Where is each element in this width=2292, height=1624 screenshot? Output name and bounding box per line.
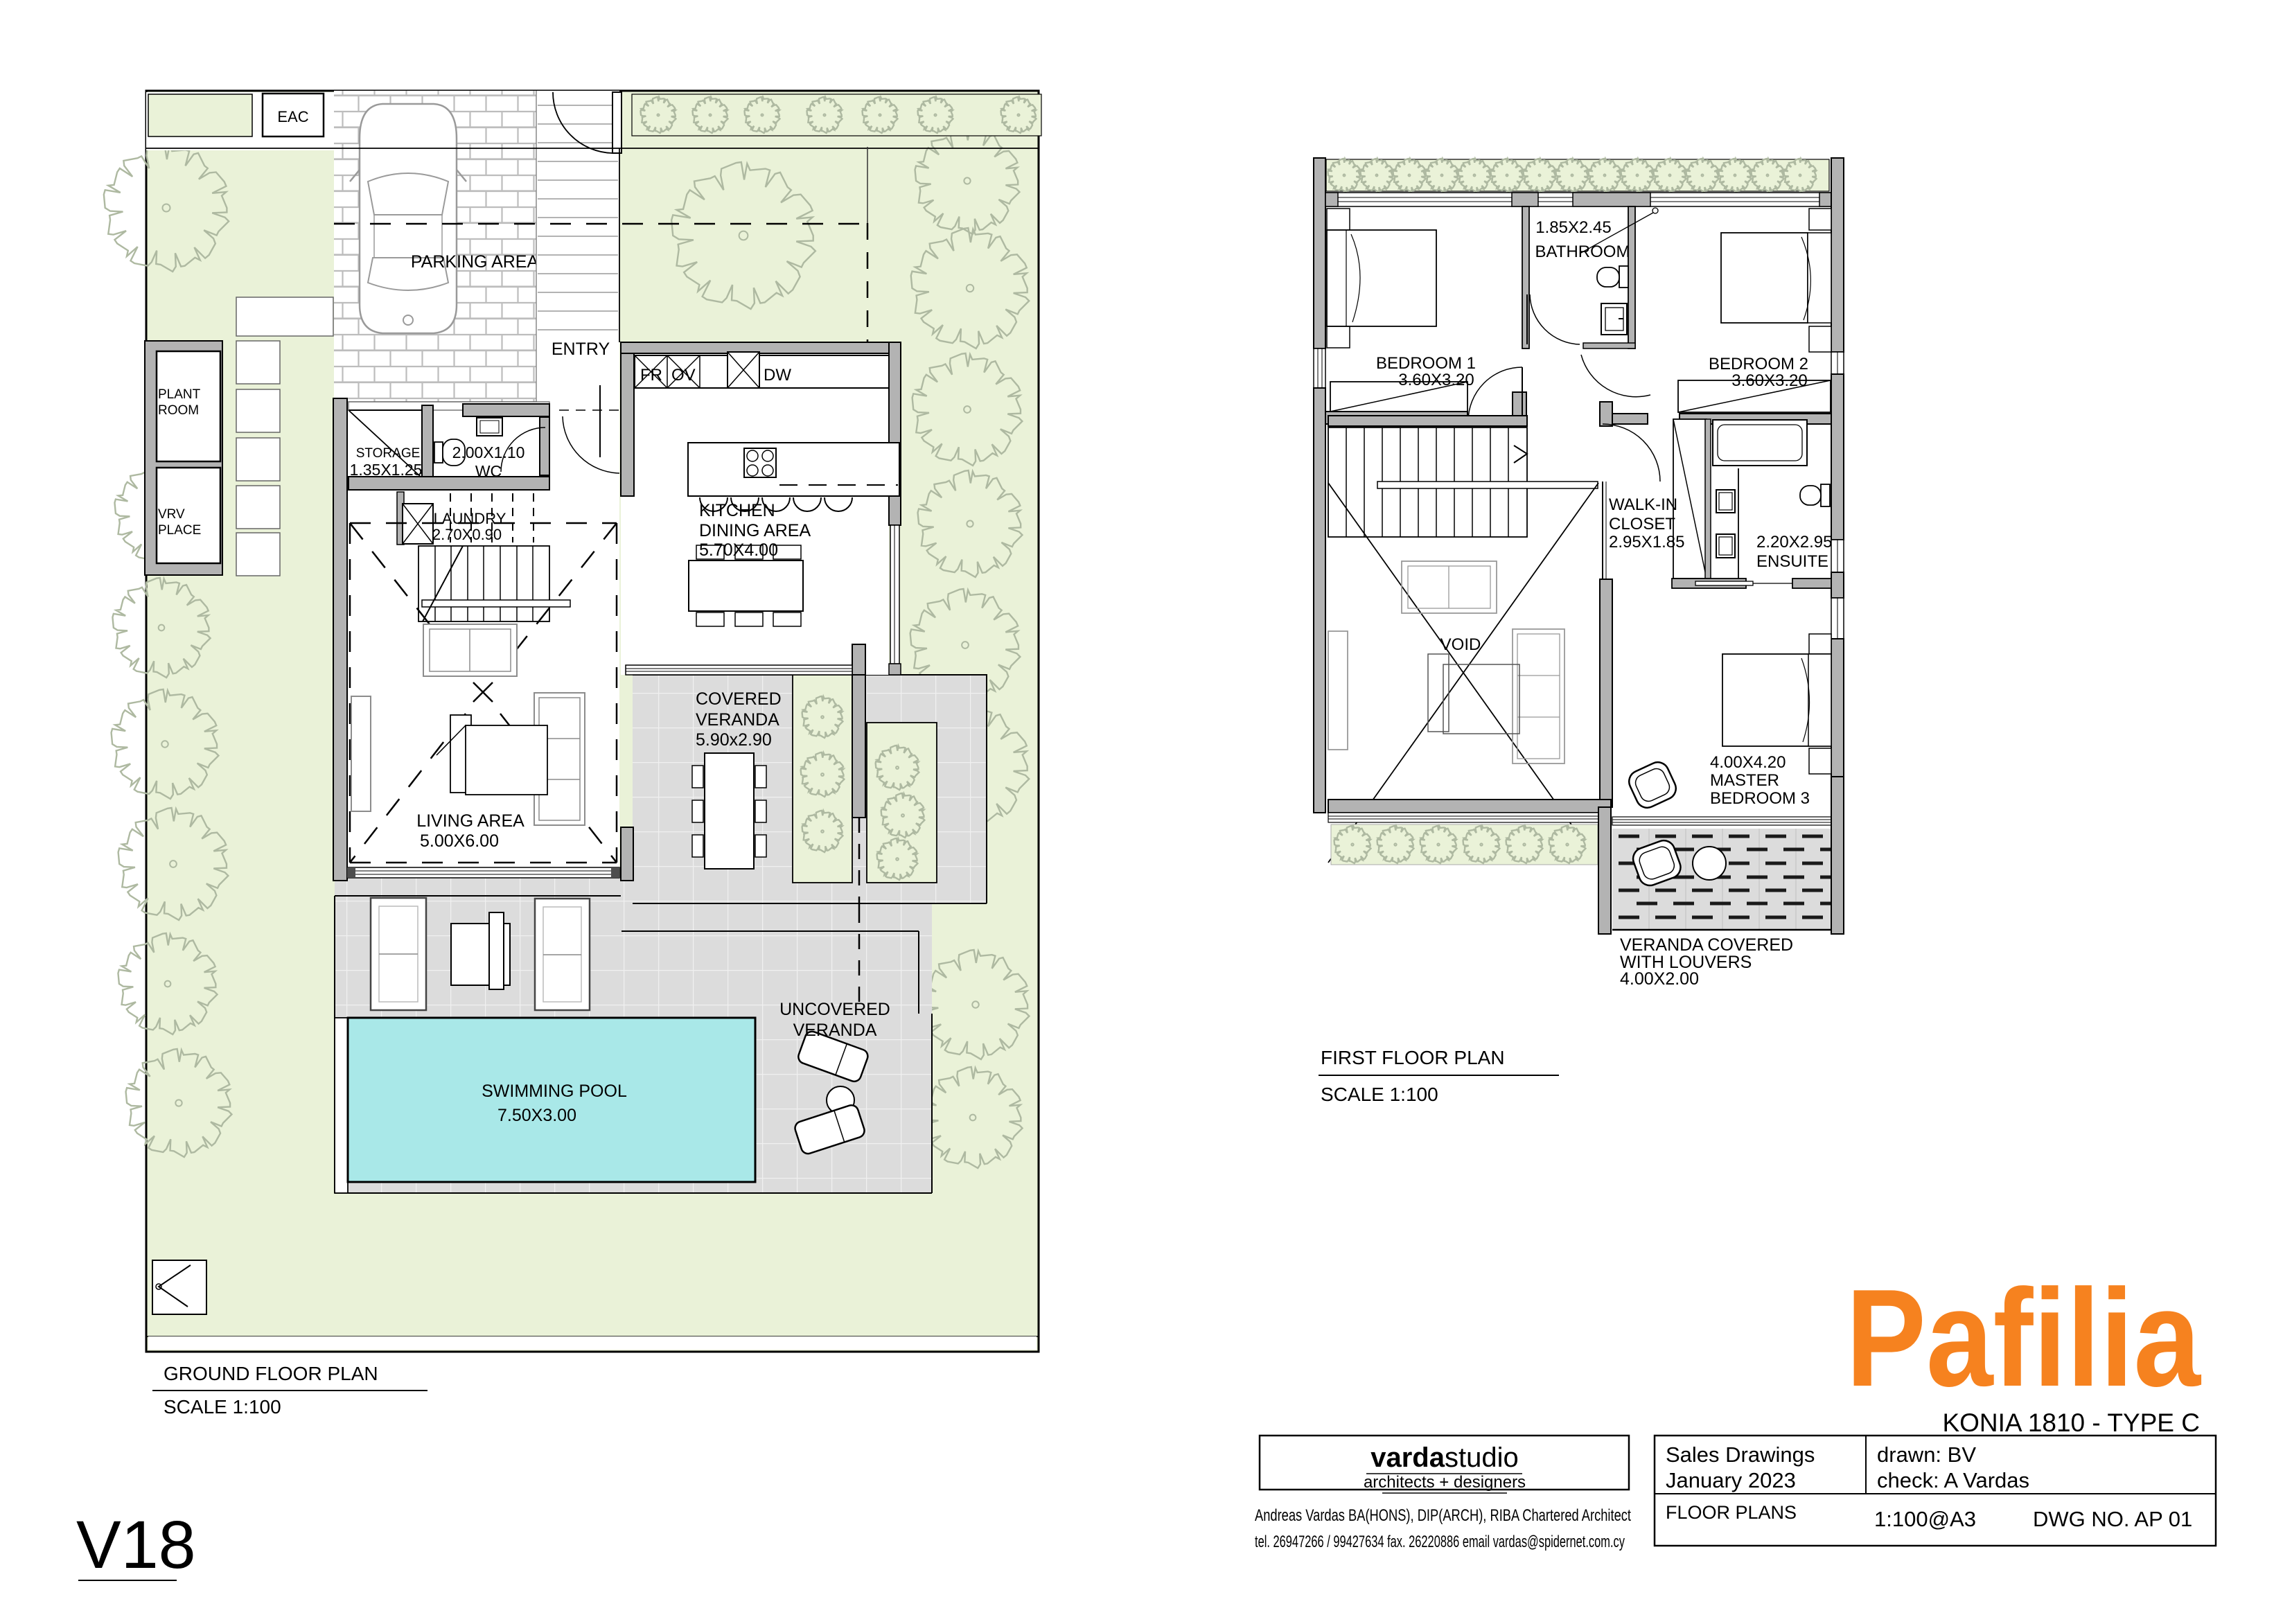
svg-text:SCALE 1:100: SCALE 1:100 [164,1396,281,1418]
svg-text:ROOM: ROOM [158,403,199,418]
svg-text:BEDROOM 2: BEDROOM 2 [1709,355,1808,373]
svg-text:5.90x2.90: 5.90x2.90 [696,730,772,750]
svg-text:1.35X1.25: 1.35X1.25 [350,461,423,479]
svg-text:LIVING AREA: LIVING AREA [416,811,524,831]
svg-text:vardastudio: vardastudio [1370,1442,1519,1473]
svg-text:FIRST FLOOR PLAN: FIRST FLOOR PLAN [1321,1047,1505,1068]
svg-text:WALK-IN: WALK-IN [1609,495,1677,514]
svg-text:4.00X4.20: 4.00X4.20 [1710,753,1786,772]
svg-text:5.00X6.00: 5.00X6.00 [420,831,499,851]
svg-text:1:100@A3: 1:100@A3 [1874,1507,1976,1531]
svg-text:DWG NO. AP 01: DWG NO. AP 01 [2033,1507,2192,1531]
svg-text:VRV: VRV [158,507,185,522]
svg-text:4.00X2.00: 4.00X2.00 [1620,969,1699,989]
svg-text:OV: OV [671,366,696,385]
svg-text:EAC: EAC [277,108,308,125]
svg-text:ENSUITE: ENSUITE [1756,552,1828,571]
svg-text:2.20X2.95: 2.20X2.95 [1756,533,1832,551]
svg-text:FLOOR PLANS: FLOOR PLANS [1666,1502,1797,1523]
svg-text:ENTRY: ENTRY [552,339,610,359]
svg-text:DINING AREA: DINING AREA [699,521,811,540]
svg-text:2.70X0.90: 2.70X0.90 [432,526,502,543]
svg-text:5.70X4.00: 5.70X4.00 [699,540,778,560]
svg-text:1.85X2.45: 1.85X2.45 [1535,218,1611,237]
svg-text:VERANDA: VERANDA [793,1021,877,1040]
svg-text:COVERED: COVERED [696,689,782,709]
svg-text:MASTER: MASTER [1710,771,1779,790]
svg-text:VERANDA COVERED: VERANDA COVERED [1620,935,1793,955]
svg-text:WC: WC [475,462,502,480]
svg-text:VERANDA: VERANDA [696,710,779,730]
svg-text:Sales Drawings: Sales Drawings [1666,1442,1815,1467]
svg-text:PLANT: PLANT [158,387,201,402]
svg-text:DW: DW [764,366,791,385]
svg-text:architects + designers: architects + designers [1364,1473,1526,1492]
svg-text:tel. 26947266 / 99427634 fax.: tel. 26947266 / 99427634 fax. 26220886 e… [1255,1533,1625,1551]
svg-text:CLOSET: CLOSET [1609,515,1675,533]
svg-text:FR: FR [640,366,662,385]
svg-text:7.50X3.00: 7.50X3.00 [497,1106,576,1125]
svg-text:V18: V18 [76,1507,196,1582]
svg-text:KITCHEN: KITCHEN [699,501,775,520]
svg-text:LAUNDRY: LAUNDRY [434,510,506,527]
svg-text:BEDROOM 1: BEDROOM 1 [1376,354,1476,373]
svg-text:Andreas Vardas BA(HONS), DIP(A: Andreas Vardas BA(HONS), DIP(ARCH), RIBA… [1255,1506,1631,1525]
svg-text:GROUND FLOOR PLAN: GROUND FLOOR PLAN [164,1363,378,1384]
svg-text:UNCOVERED: UNCOVERED [779,1000,890,1019]
svg-text:drawn: BV: drawn: BV [1877,1442,1976,1467]
svg-text:SCALE 1:100: SCALE 1:100 [1321,1084,1438,1105]
svg-text:3.60X3.20: 3.60X3.20 [1398,371,1474,389]
svg-text:2.00X1.10: 2.00X1.10 [452,443,525,461]
svg-text:PARKING AREA: PARKING AREA [411,252,539,272]
svg-text:KONIA 1810 - TYPE C: KONIA 1810 - TYPE C [1942,1409,2200,1437]
svg-text:check: A Vardas: check: A Vardas [1877,1468,2029,1492]
svg-text:SWIMMING POOL: SWIMMING POOL [482,1082,627,1101]
svg-text:BEDROOM 3: BEDROOM 3 [1710,789,1810,808]
svg-text:Pafilia: Pafilia [1846,1261,2202,1415]
svg-text:3.60X3.20: 3.60X3.20 [1731,371,1807,390]
svg-text:STORAGE: STORAGE [356,446,421,461]
svg-text:January 2023: January 2023 [1666,1468,1796,1492]
svg-text:VOID: VOID [1440,635,1481,654]
svg-text:PLACE: PLACE [158,523,201,538]
svg-text:2.95X1.85: 2.95X1.85 [1609,533,1684,551]
